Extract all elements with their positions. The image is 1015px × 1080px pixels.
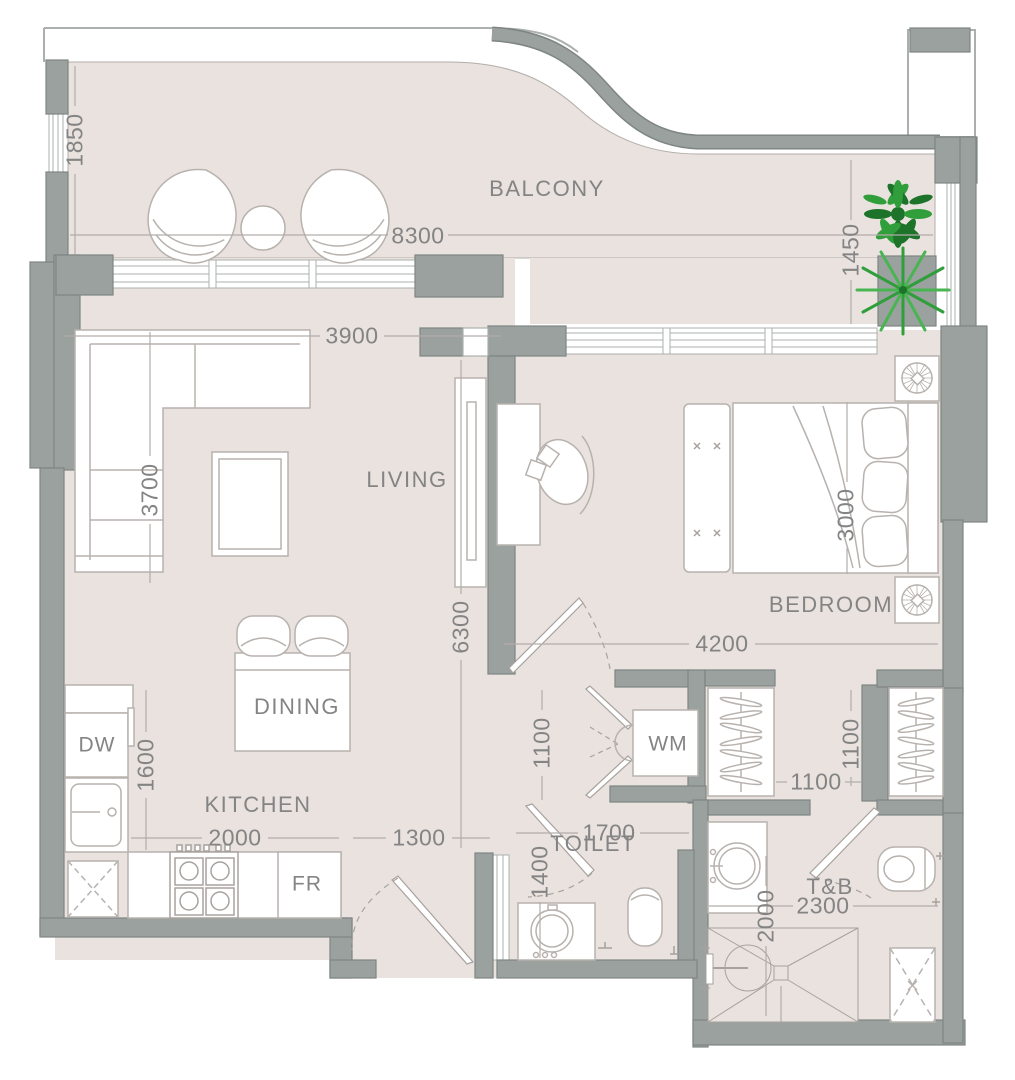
shower bbox=[700, 928, 858, 1022]
dim-balcony-width: 8300 bbox=[391, 225, 444, 248]
stove bbox=[170, 845, 238, 918]
appliance-label-dishwasher: DW bbox=[79, 735, 116, 756]
dim-living-side: 3700 bbox=[139, 463, 162, 516]
floor-plan: BALCONY LIVING DINING KITCHEN BEDROOM TO… bbox=[0, 0, 1015, 1080]
dim-tb-width: 2300 bbox=[796, 895, 849, 918]
living-balcony-window bbox=[113, 260, 428, 288]
nightstand-top bbox=[895, 356, 939, 401]
dim-tb-depth: 2000 bbox=[755, 889, 778, 942]
kitchen-cabinet bbox=[65, 685, 133, 713]
step-gap bbox=[463, 328, 488, 356]
bed-bench bbox=[684, 404, 730, 572]
wardrobe-right bbox=[889, 688, 943, 796]
dim-living-width: 3900 bbox=[325, 325, 378, 348]
room-label-bedroom: BEDROOM bbox=[769, 594, 893, 616]
kitchen-sink bbox=[65, 778, 128, 852]
tv-unit bbox=[455, 378, 486, 587]
appliance-label-fridge: FR bbox=[292, 874, 322, 895]
balcony-floor-right bbox=[530, 258, 878, 324]
dim-dressing-width: 1100 bbox=[790, 771, 841, 794]
tb-wc bbox=[878, 847, 935, 891]
coffee-table bbox=[212, 452, 288, 556]
nightstand-bottom bbox=[895, 577, 939, 623]
bedroom-balcony-window bbox=[565, 328, 877, 354]
room-label-dining: DINING bbox=[254, 696, 340, 718]
floor-plan-drawing bbox=[0, 0, 1015, 1080]
dim-dressing-depth: 1100 bbox=[840, 718, 863, 769]
dim-kitchen-side: 1600 bbox=[135, 738, 158, 791]
dim-hall-width: 1100 bbox=[531, 717, 554, 768]
balcony-table bbox=[241, 206, 285, 250]
entry-floor bbox=[330, 850, 497, 978]
dim-bed-width: 3000 bbox=[835, 488, 858, 541]
room-label-living: LIVING bbox=[366, 469, 447, 491]
wardrobe-left bbox=[708, 688, 774, 796]
dim-living-length: 6300 bbox=[450, 600, 473, 653]
tb-shaft bbox=[890, 948, 935, 1022]
toilet-wc bbox=[628, 888, 662, 946]
room-label-balcony: BALCONY bbox=[489, 178, 605, 200]
right-window bbox=[947, 182, 960, 328]
entry-side-window bbox=[493, 855, 509, 960]
dim-entry-width: 1300 bbox=[392, 827, 445, 850]
dim-balcony-side-left: 1850 bbox=[64, 113, 87, 166]
dim-kitchen-width: 2000 bbox=[208, 827, 261, 850]
dim-bedroom-width: 4200 bbox=[695, 633, 748, 656]
toilet-sink bbox=[518, 903, 595, 960]
kitchen-shaft bbox=[68, 861, 118, 917]
dim-balcony-side-right: 1450 bbox=[840, 223, 863, 276]
room-label-kitchen: KITCHEN bbox=[204, 794, 311, 816]
dim-toilet-width: 1700 bbox=[582, 822, 635, 845]
appliance-label-washing-machine: WM bbox=[648, 734, 687, 755]
dim-toilet-side: 1400 bbox=[529, 845, 552, 898]
